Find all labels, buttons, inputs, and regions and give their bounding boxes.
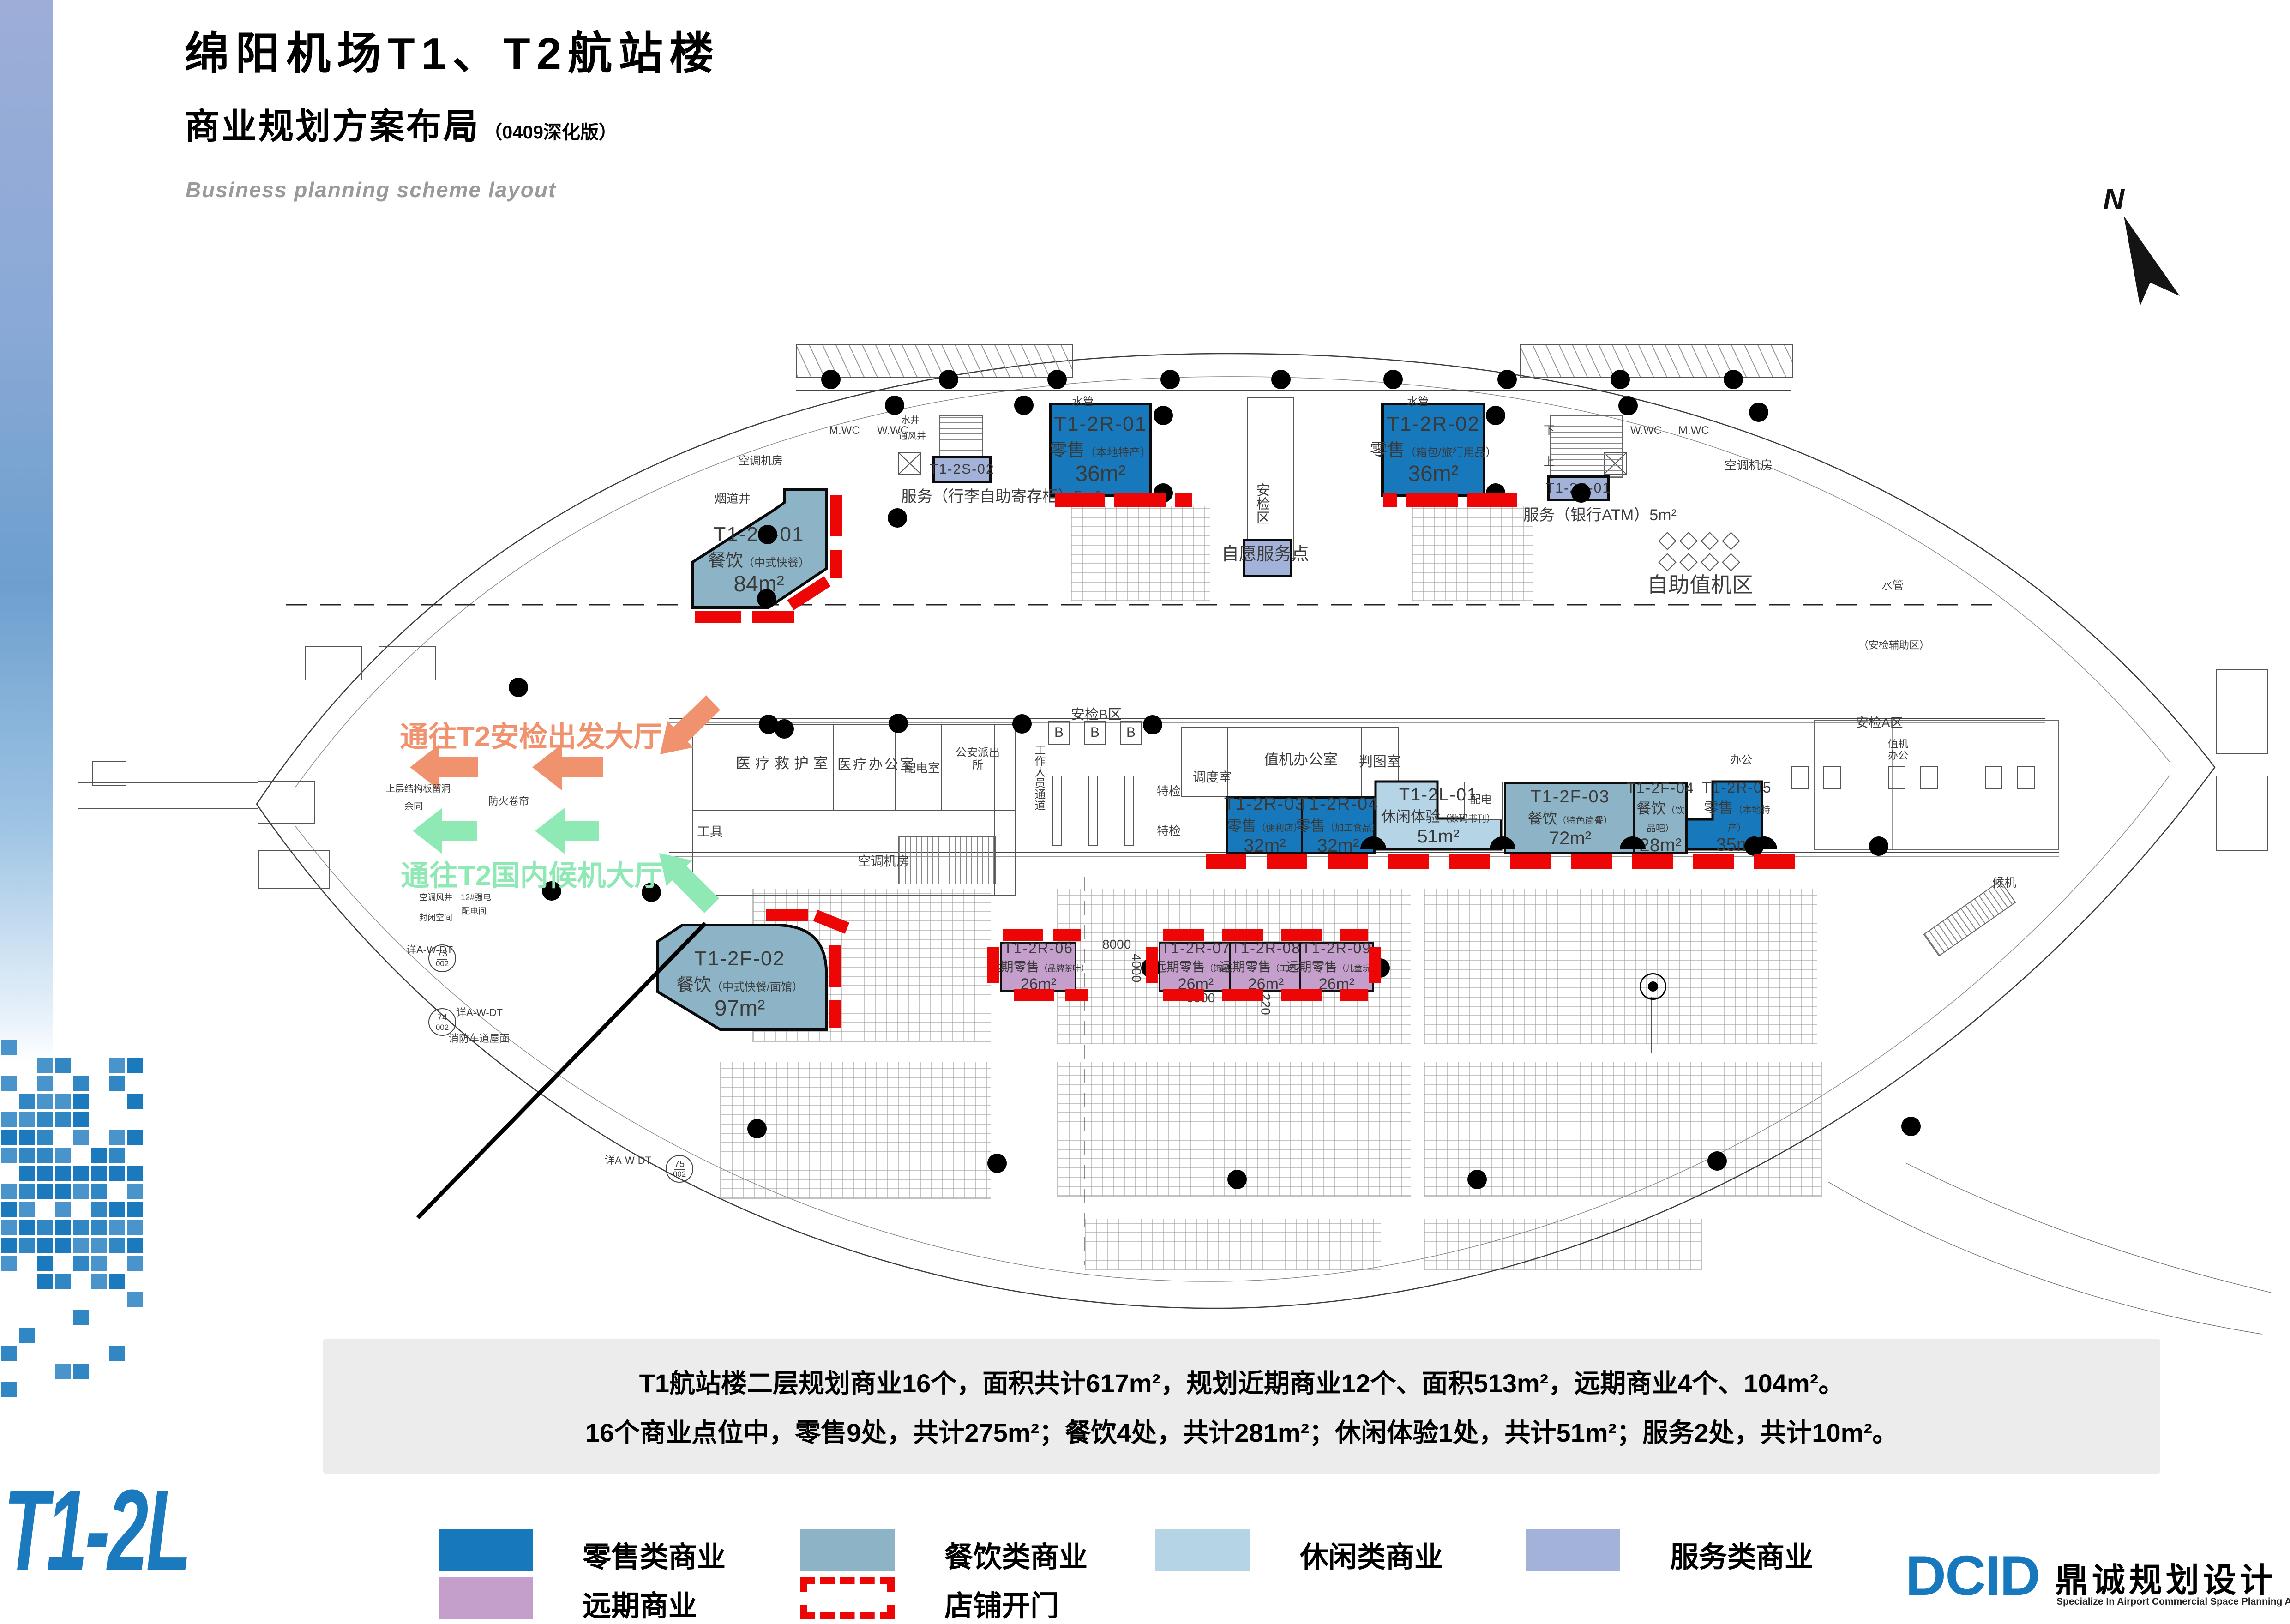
mosaic-pixel	[127, 1238, 143, 1253]
detail-note-circle: 73002	[428, 944, 456, 972]
mosaic-pixel	[37, 1256, 53, 1271]
detail-note-circle: 74002	[428, 1008, 456, 1036]
shop-door-mark	[1206, 854, 1246, 869]
mosaic-pixel	[109, 1346, 125, 1361]
mosaic-pixel	[55, 1148, 71, 1163]
shop-door-mark	[1003, 929, 1043, 941]
plan-label-note: 详A-W-DT	[456, 1007, 503, 1019]
shop-T1-2F-03: T1-2F-03 餐饮（特色简餐） 72m²	[1504, 782, 1636, 854]
roof-truss-right	[1520, 344, 1793, 378]
shop-door-mark	[829, 1000, 841, 1028]
mosaic-pixel	[73, 1256, 89, 1271]
plan-label-b: B	[1090, 725, 1100, 740]
mosaic-pixel	[37, 1148, 53, 1163]
plan-label-shuiguan: 水管	[1881, 580, 1904, 592]
note-number: 75	[674, 1160, 685, 1170]
dcid-tagline: Specialize In Airport Commercial Space P…	[2056, 1596, 2290, 1607]
plan-label-yiliaojiuhushi: 医疗救护室	[736, 755, 833, 772]
mosaic-pixel	[73, 1184, 89, 1199]
plan-label-b: B	[1054, 725, 1064, 740]
shop-door-mark	[1693, 854, 1734, 869]
summary-box: T1航站楼二层规划商业16个，面积共计617m²，规划近期商业12个、面积513…	[323, 1339, 2160, 1474]
plan-structure	[1823, 766, 1841, 789]
mosaic-pixel	[19, 1130, 35, 1145]
plan-label-gongju: 工具	[697, 824, 723, 839]
plan-label-mwc: M.WC	[829, 425, 860, 437]
shop-id: T1-2R-05	[1702, 779, 1772, 796]
shop-door-mark	[830, 495, 842, 536]
structural-column	[987, 1154, 1007, 1173]
plan-label-dim8000: 8000	[1102, 937, 1131, 951]
mosaic-pixel	[37, 1184, 53, 1199]
mosaic-pixel	[55, 1202, 71, 1217]
green-arrow-left-1	[413, 808, 477, 854]
mosaic-pixel	[73, 1220, 89, 1235]
shop-door-mark	[752, 611, 794, 623]
plan-structure	[1920, 766, 1938, 789]
mosaic-pixel	[91, 1220, 107, 1235]
plan-label-anjianfuzhu: （安检辅助区）	[1858, 640, 1929, 651]
plan-label-kongtiaojifang: 空调机房	[1725, 459, 1773, 472]
plan-label-b: B	[1126, 725, 1136, 740]
mosaic-pixel	[109, 1148, 125, 1163]
structural-column	[1749, 403, 1768, 422]
shop-T1-2S-02: T1-2S-02	[932, 456, 992, 483]
plan-structure	[2017, 766, 2035, 789]
shop-area: 32m²	[1317, 836, 1359, 856]
mosaic-pixel	[55, 1112, 71, 1127]
plan-label-fengbikongjian: 封闭空间	[419, 913, 452, 922]
legend-swatch-food	[800, 1529, 895, 1571]
structural-column	[1707, 1151, 1727, 1171]
note-sheet: 002	[436, 1023, 449, 1032]
legend-label-food: 餐饮类商业	[944, 1534, 1088, 1575]
structural-column	[1271, 370, 1291, 389]
shop-category: 远期零售（品牌茶叶）	[988, 957, 1089, 975]
shop-category: 餐饮（饮品吧）	[1635, 797, 1685, 835]
mosaic-pixel	[55, 1364, 71, 1379]
mosaic-pixel	[127, 1184, 143, 1199]
plan-structure	[2216, 669, 2268, 754]
legend-label-service: 服务类商业	[1670, 1534, 1813, 1575]
note-sheet: 002	[436, 960, 449, 968]
mosaic-pixel	[127, 1094, 143, 1109]
green-arrow-diagonal	[659, 853, 719, 913]
mosaic-pixel	[73, 1130, 89, 1145]
mosaic-pixel	[1, 1112, 17, 1127]
summary-line-2: 16个商业点位中，零售9处，共计275m²；餐饮4处，共计281m²；休闲体验1…	[323, 1412, 2160, 1450]
mosaic-pixel	[37, 1238, 53, 1253]
shop-T1-2R-09: T1-2R-09 远期零售（儿童玩具） 26m²	[1299, 942, 1374, 992]
plan-label-houji: 候机	[1992, 876, 2016, 890]
shop-door-mark	[1014, 989, 1054, 1001]
plan-label-kongtiaojifang: 空调机房	[739, 455, 783, 468]
sidebar-gradient-strip	[0, 0, 53, 1062]
shop-id: T1-2F-02	[694, 947, 785, 970]
legend-label-leisure: 休闲类商业	[1300, 1534, 1443, 1575]
shop-door-mark	[1571, 854, 1612, 869]
shop-T1-2R-02: T1-2R-02 零售（箱包/旅行用品） 36m²	[1381, 403, 1485, 497]
structural-column	[1014, 396, 1034, 415]
mosaic-pixel	[19, 1148, 35, 1163]
structural-column	[1227, 1170, 1247, 1189]
mosaic-pixel	[73, 1076, 89, 1091]
legend-swatch-leisure	[1155, 1529, 1250, 1571]
structural-column	[1611, 370, 1630, 389]
legend-swatch-shop-door	[800, 1577, 895, 1619]
shop-door-mark	[1175, 493, 1192, 507]
plan-label-shuijing: 水井	[901, 415, 920, 426]
north-arrow-icon	[2124, 216, 2180, 306]
apron-road-curve-2	[1906, 1163, 2271, 1293]
subtitle-version-note: （0409深化版）	[484, 117, 617, 144]
plan-label-shangceng: 上层结构板留洞	[386, 784, 451, 794]
mosaic-pixel	[73, 1310, 89, 1325]
shop-id: T1-2R-03	[1224, 794, 1306, 814]
detail-note-circle: 75002	[666, 1155, 693, 1183]
mosaic-pixel	[127, 1220, 143, 1235]
plan-label-peidianjian: 配电间	[462, 907, 487, 916]
shop-door-mark	[1449, 854, 1490, 869]
mosaic-pixel	[55, 1058, 71, 1073]
structural-column	[757, 589, 776, 608]
mosaic-pixel	[1, 1256, 17, 1271]
shop-id: T1-2R-06	[1004, 940, 1073, 957]
mosaic-pixel	[19, 1112, 35, 1127]
mosaic-pixel	[109, 1220, 125, 1235]
annotation-to-t2-security: 通往T2安检出发大厅	[400, 713, 662, 755]
structural-column	[1012, 714, 1032, 734]
plan-structure	[1052, 776, 1062, 846]
shop-door-mark	[1388, 854, 1429, 869]
dcid-company-name: 鼎诚规划设计	[2055, 1553, 2277, 1601]
summary-line-1: T1航站楼二层规划商业16个，面积共计617m²，规划近期商业12个、面积513…	[323, 1363, 2160, 1400]
shop-door-mark	[1163, 929, 1204, 941]
mosaic-pixel	[37, 1112, 53, 1127]
shop-T1-2F-02-label: T1-2F-02 餐饮（中式快餐/面馆） 97m²	[660, 943, 819, 1026]
plan-label-shang: 上	[1544, 456, 1555, 469]
escalator-left	[898, 836, 996, 884]
plan-structure	[258, 850, 330, 889]
shop-door-mark	[695, 611, 741, 623]
shop-door-mark	[830, 550, 842, 578]
mosaic-pixel	[1, 1220, 17, 1235]
mosaic-pixel	[1, 1184, 17, 1199]
shop-door-mark	[1146, 947, 1158, 983]
structural-column	[1497, 370, 1517, 389]
plan-label-zhijibangong: 值机办公	[1884, 739, 1912, 761]
structural-column	[1869, 836, 1888, 856]
mosaic-pixel	[91, 1184, 107, 1199]
shop-category: 零售（加工食品）	[1296, 814, 1381, 836]
plan-structure	[1791, 766, 1809, 789]
plan-label-zizhufuwudian: 自愿服务点	[1221, 545, 1309, 565]
mosaic-pixel	[109, 1130, 125, 1145]
mosaic-pixel	[19, 1238, 35, 1253]
shop-id: T1-2R-02	[1387, 413, 1480, 436]
structural-column	[1724, 370, 1743, 389]
structural-column	[885, 396, 904, 415]
structural-column	[1143, 715, 1162, 734]
structural-column	[758, 525, 777, 544]
plan-label-tejian: 特检	[1157, 785, 1181, 798]
legend-swatch-service	[1526, 1529, 1620, 1571]
shop-door-mark	[1163, 989, 1204, 1001]
plan-label-gongzuotongdao: 工作人员通道	[1032, 744, 1045, 811]
mosaic-pixel	[73, 1094, 89, 1109]
mosaic-pixel	[91, 1166, 107, 1181]
mosaic-pixel	[19, 1220, 35, 1235]
floor-code: T1-2L	[4, 1473, 189, 1588]
structural-column	[1160, 370, 1180, 389]
shop-door-mark	[1754, 854, 1795, 869]
mosaic-pixel	[91, 1202, 107, 1217]
plan-label-gongan: 公安派出所	[954, 747, 1002, 772]
mosaic-pixel	[109, 1076, 125, 1091]
shop-T1-2S-01-label: 服务（银行ATM）5m²	[1523, 502, 1677, 525]
plan-structure	[1088, 776, 1098, 846]
plan-label-fanghuojuanlian: 防火卷帘	[488, 796, 529, 807]
plan-label-tongfengjing: 通风井	[898, 431, 926, 441]
plan-structure	[1124, 776, 1134, 846]
plan-structure	[305, 646, 362, 680]
shop-id: T1-2R-01	[1054, 413, 1147, 436]
structural-column	[509, 678, 528, 697]
mosaic-pixel	[55, 1274, 71, 1289]
mosaic-pixel	[37, 1076, 53, 1091]
mosaic-pixel	[127, 1058, 143, 1073]
shop-door-mark	[1632, 854, 1673, 869]
shop-door-mark	[1281, 989, 1322, 1001]
shop-area: 72m²	[1549, 828, 1591, 849]
mosaic-pixel	[1, 1202, 17, 1217]
shop-door-mark	[1065, 989, 1088, 1001]
structural-column	[747, 1119, 767, 1138]
legend-label-future: 远期商业	[583, 1582, 697, 1624]
structural-column	[1571, 483, 1591, 503]
shop-id: T1-2R-08	[1231, 940, 1301, 957]
mosaic-pixel	[55, 1184, 71, 1199]
shop-area: 51m²	[1417, 826, 1459, 847]
mosaic-pixel	[19, 1094, 35, 1109]
page-subtitle: 商业规划方案布局 （0409深化版）	[185, 98, 617, 149]
plan-label-shuiguan: 水管	[1407, 396, 1429, 409]
mosaic-pixel	[1, 1238, 17, 1253]
mosaic-pixel	[1, 1076, 17, 1091]
plan-label-wwc: W.WC	[1630, 425, 1662, 437]
shop-category: 休闲体验（数码书刊）	[1381, 805, 1496, 826]
annotation-to-t2-domestic: 通往T2国内候机大厅	[401, 852, 663, 894]
shop-door-mark	[987, 947, 999, 983]
mosaic-pixel	[19, 1184, 35, 1199]
north-label: N	[2103, 182, 2124, 216]
mosaic-pixel	[127, 1130, 143, 1145]
shop-door-mark	[766, 909, 808, 921]
shop-id: T1-2R-09	[1302, 940, 1371, 957]
plan-label-peidian: 配电	[1470, 794, 1492, 806]
mosaic-pixel	[1, 1382, 17, 1397]
shop-door-mark	[1222, 929, 1263, 941]
mosaic-pixel	[37, 1274, 53, 1289]
shop-door-mark	[1406, 493, 1458, 507]
plan-structure	[379, 646, 436, 680]
structural-column	[1467, 1170, 1487, 1189]
shop-door-mark	[1055, 493, 1105, 507]
shop-door-mark	[1114, 493, 1166, 507]
plan-label-mwc: M.WC	[1678, 425, 1709, 437]
mosaic-pixel	[73, 1166, 89, 1181]
shop-id: T1-2F-03	[1530, 787, 1610, 807]
shop-category: 零售（便利店）	[1227, 814, 1303, 836]
mosaic-pixel	[127, 1202, 143, 1217]
plan-label-diaodushi: 调度室	[1193, 770, 1232, 784]
shop-area: 32m²	[1244, 836, 1286, 856]
plan-structure	[2216, 776, 2268, 851]
shop-door-mark	[829, 945, 841, 987]
shop-door-mark	[1222, 989, 1263, 1001]
shop-area: 36m²	[1408, 461, 1458, 487]
mosaic-pixel	[91, 1148, 107, 1163]
plan-label-pantushi: 判图室	[1359, 754, 1400, 770]
mosaic-pixel	[91, 1256, 107, 1271]
shop-area: 97m²	[715, 996, 765, 1021]
mosaic-pixel	[91, 1238, 107, 1253]
structural-column	[1047, 370, 1067, 389]
shop-door-mark	[1340, 929, 1368, 941]
shop-door-mark	[1510, 854, 1551, 869]
mosaic-pixel	[55, 1094, 71, 1109]
shop-door-mark	[1369, 947, 1381, 983]
shop-category: 餐饮（特色简餐）	[1527, 807, 1612, 828]
shop-category: 餐饮（中式快餐/面馆）	[676, 970, 803, 996]
floor-plan-canvas: 绵阳机场T1、T2航站楼 商业规划方案布局 （0409深化版） Business…	[0, 0, 2290, 1619]
mosaic-pixel	[1, 1130, 17, 1145]
mosaic-pixel	[109, 1202, 125, 1217]
mosaic-pixel	[109, 1166, 125, 1181]
shop-T1-2R-01: T1-2R-01 零售（本地特产） 36m²	[1049, 403, 1152, 497]
note-number: 73	[437, 949, 447, 960]
legend-label-shop-door: 店铺开门	[944, 1582, 1059, 1624]
mosaic-pixel	[127, 1256, 143, 1271]
plan-structure	[1888, 766, 1905, 789]
plan-label-kongtiaofengjing: 空调风井	[419, 893, 452, 902]
structural-column	[1154, 406, 1173, 425]
mosaic-pixel	[109, 1058, 125, 1073]
structural-column	[1901, 1117, 1921, 1136]
shop-id: T1-2R-04	[1298, 794, 1379, 814]
structural-column	[888, 508, 907, 528]
plan-structure	[1985, 766, 2002, 789]
mosaic-pixel	[37, 1220, 53, 1235]
security-check-zone-box	[1247, 398, 1293, 559]
shop-door-mark	[1383, 493, 1397, 507]
mosaic-pixel	[91, 1274, 107, 1289]
survey-point-icon	[1640, 973, 1666, 1000]
green-arrow-left-2	[535, 808, 599, 854]
shop-door-mark	[1467, 493, 1517, 507]
shop-area: 28m²	[1639, 835, 1681, 856]
shop-id: T1-2L-01	[1399, 785, 1478, 805]
plan-label-yandaojing: 烟道井	[715, 492, 751, 505]
plan-label-xia: 下	[1544, 425, 1555, 437]
shop-category: 餐饮（中式快餐）	[708, 546, 810, 571]
mosaic-pixel	[37, 1130, 53, 1145]
mosaic-pixel	[127, 1166, 143, 1181]
plan-label-bangong: 办公	[1730, 754, 1752, 767]
structural-column	[759, 715, 778, 734]
mosaic-pixel	[73, 1238, 89, 1253]
structural-column	[939, 370, 958, 389]
mosaic-pixel	[1, 1040, 17, 1055]
plan-label-anjianB: 安检B区	[1071, 707, 1122, 723]
shop-T1-2R-06: T1-2R-06 远期零售（品牌茶叶） 26m²	[1000, 942, 1076, 992]
structural-column	[889, 714, 908, 733]
structural-column	[1486, 406, 1505, 425]
shop-category: 零售（箱包/旅行用品）	[1370, 436, 1497, 461]
shop-door-mark	[1340, 989, 1368, 1001]
plan-label-tejian: 特检	[1157, 824, 1181, 838]
mosaic-pixel	[1, 1148, 17, 1163]
mosaic-pixel	[37, 1058, 53, 1073]
note-sheet: 002	[673, 1170, 686, 1179]
shop-area: 36m²	[1075, 461, 1125, 487]
shop-T1-2R-03: T1-2R-03 零售（便利店） 32m²	[1226, 796, 1304, 854]
plan-label-kongtiaojifang: 空调机房	[858, 854, 909, 868]
mosaic-pixel	[19, 1328, 35, 1343]
structural-column	[821, 370, 841, 389]
mosaic-pixel	[55, 1238, 71, 1253]
mosaic-pixel	[19, 1166, 35, 1181]
plan-label-dim4000: 4000	[1129, 954, 1143, 982]
shop-category: 零售（本地特产）	[1050, 436, 1151, 461]
mosaic-pixel	[19, 1202, 35, 1217]
mosaic-pixel	[55, 1220, 71, 1235]
mosaic-pixel	[37, 1094, 53, 1109]
shop-door-mark	[1267, 854, 1307, 869]
plan-label-note: 详A-W-DT	[605, 1155, 651, 1167]
shop-category: 零售（本地特产）	[1698, 796, 1776, 835]
plan-label-zhijibangongshi: 值机办公室	[1264, 752, 1338, 768]
subtitle-text: 商业规划方案布局	[185, 98, 480, 149]
mosaic-pixel	[1, 1346, 17, 1361]
shop-id: T1-2R-07	[1161, 940, 1231, 957]
subtitle-english: Business planning scheme layout	[186, 177, 556, 202]
shop-door-mark	[1281, 929, 1322, 941]
shop-id: T1-2S-02	[929, 462, 994, 477]
dcid-logo: DCID	[1905, 1547, 2039, 1604]
plan-structure	[92, 761, 126, 786]
plan-structure	[258, 781, 315, 824]
note-number: 74	[437, 1013, 447, 1023]
mosaic-pixel	[109, 1238, 125, 1253]
plan-label-yutong: 余同	[404, 801, 423, 812]
mosaic-pixel	[73, 1112, 89, 1127]
stairs-right	[1550, 415, 1623, 478]
plan-label-shuiguan: 水管	[1072, 396, 1094, 409]
mosaic-pixel	[37, 1166, 53, 1181]
plan-label-peidianshi: 配电室	[904, 762, 940, 775]
mosaic-pixel	[127, 1292, 143, 1307]
mosaic-pixel	[109, 1274, 125, 1289]
plan-label-xiaofang: 消防车道屋面	[449, 1033, 510, 1045]
mosaic-pixel	[73, 1364, 89, 1379]
mosaic-pixel	[55, 1166, 71, 1181]
structural-column	[1618, 396, 1638, 415]
plan-label-anjianA: 安检A区	[1856, 716, 1903, 730]
plan-label-qiangdian: 12#强电	[461, 893, 491, 902]
legend-swatch-future	[439, 1577, 533, 1619]
shop-door-mark	[1328, 854, 1368, 869]
